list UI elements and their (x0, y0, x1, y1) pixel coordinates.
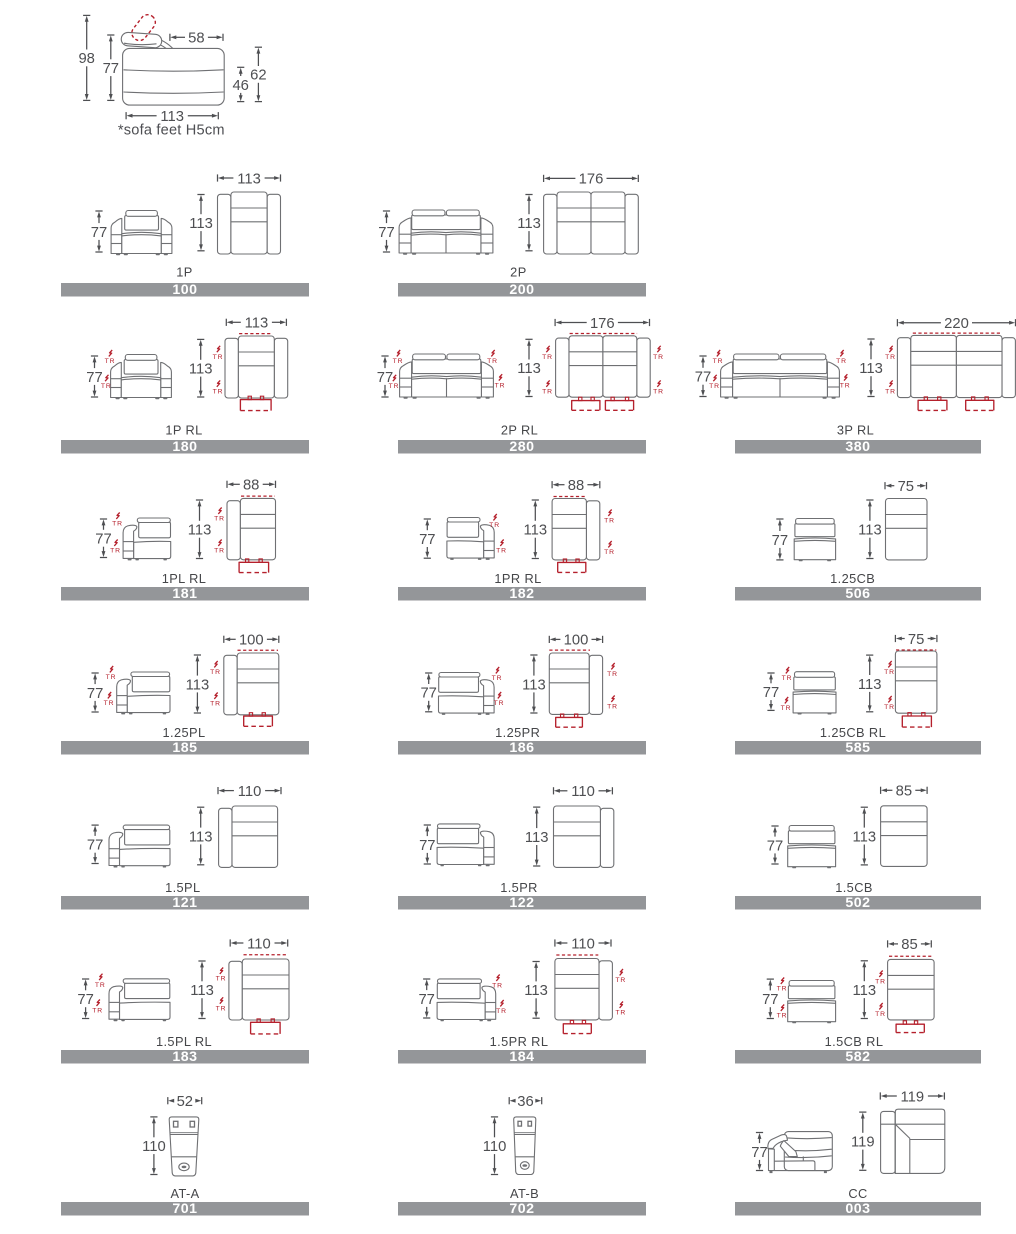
svg-text:121: 121 (172, 895, 197, 911)
svg-text:113: 113 (525, 830, 549, 846)
svg-text:280: 280 (509, 439, 534, 455)
svg-text:1.25PL: 1.25PL (163, 725, 206, 740)
svg-text:TR: TR (607, 671, 618, 678)
svg-text:85: 85 (901, 937, 917, 953)
svg-text:1.5PL RL: 1.5PL RL (156, 1034, 212, 1049)
svg-text:77: 77 (762, 992, 778, 1008)
svg-text:TR: TR (885, 354, 896, 361)
svg-text:113: 113 (853, 829, 877, 845)
svg-text:TR: TR (713, 358, 724, 365)
svg-text:TR: TR (92, 1008, 103, 1015)
svg-text:1.5CB: 1.5CB (835, 880, 873, 895)
svg-text:TR: TR (496, 1008, 507, 1015)
svg-text:77: 77 (751, 1145, 767, 1161)
svg-text:100: 100 (564, 633, 589, 649)
svg-text:77: 77 (772, 533, 788, 549)
svg-text:77: 77 (91, 225, 107, 241)
svg-text:TR: TR (495, 382, 506, 389)
svg-text:TR: TR (875, 1011, 886, 1018)
svg-text:113: 113 (853, 983, 877, 999)
svg-text:TR: TR (216, 976, 227, 983)
svg-text:77: 77 (87, 838, 103, 854)
svg-text:702: 702 (509, 1201, 534, 1217)
svg-text:110: 110 (247, 936, 271, 952)
svg-text:TR: TR (777, 1013, 788, 1020)
svg-text:2P RL: 2P RL (501, 423, 538, 438)
svg-text:TR: TR (214, 548, 225, 555)
svg-text:113: 113 (517, 216, 541, 232)
svg-text:77: 77 (420, 686, 436, 702)
svg-text:113: 113 (522, 677, 546, 693)
svg-text:TR: TR (210, 701, 221, 708)
svg-text:113: 113 (237, 171, 261, 187)
svg-text:182: 182 (509, 586, 534, 602)
svg-text:77: 77 (419, 532, 435, 548)
svg-text:003: 003 (845, 1201, 870, 1217)
svg-text:380: 380 (845, 439, 870, 455)
svg-text:1.5PR RL: 1.5PR RL (490, 1034, 549, 1049)
svg-text:98: 98 (78, 51, 94, 67)
svg-text:TR: TR (653, 354, 664, 361)
svg-text:TR: TR (884, 669, 895, 676)
svg-text:186: 186 (509, 740, 534, 756)
svg-text:701: 701 (172, 1201, 197, 1217)
svg-text:1.5CB RL: 1.5CB RL (825, 1034, 884, 1049)
svg-text:113: 113 (186, 677, 210, 693)
svg-text:110: 110 (571, 784, 595, 800)
svg-text:46: 46 (232, 78, 248, 94)
svg-text:1P: 1P (176, 265, 192, 280)
svg-text:CC: CC (848, 1186, 867, 1201)
svg-text:TR: TR (615, 977, 626, 984)
svg-text:TR: TR (884, 704, 895, 711)
svg-text:TR: TR (213, 354, 224, 361)
svg-text:184: 184 (509, 1049, 534, 1065)
svg-text:TR: TR (782, 675, 793, 682)
svg-text:183: 183 (172, 1049, 197, 1065)
svg-text:77: 77 (378, 225, 394, 241)
svg-text:220: 220 (944, 316, 969, 332)
svg-text:100: 100 (172, 282, 197, 298)
svg-text:100: 100 (239, 633, 264, 649)
svg-text:TR: TR (105, 358, 116, 365)
svg-text:62: 62 (250, 68, 266, 84)
svg-text:TR: TR (496, 548, 507, 555)
svg-text:110: 110 (483, 1139, 507, 1155)
svg-text:*sofa feet H5cm: *sofa feet H5cm (118, 123, 225, 139)
svg-text:TR: TR (492, 983, 503, 990)
svg-text:110: 110 (142, 1139, 166, 1155)
svg-text:77: 77 (95, 532, 111, 548)
svg-text:110: 110 (238, 784, 262, 800)
svg-text:TR: TR (110, 548, 121, 555)
svg-text:113: 113 (858, 677, 882, 693)
svg-text:180: 180 (172, 439, 197, 455)
svg-text:TR: TR (840, 382, 851, 389)
svg-text:77: 77 (103, 61, 119, 77)
svg-text:77: 77 (418, 992, 434, 1008)
svg-text:2P: 2P (510, 265, 526, 280)
svg-text:TR: TR (494, 700, 505, 707)
svg-text:113: 113 (188, 523, 212, 539)
svg-text:TR: TR (604, 518, 615, 525)
svg-text:185: 185 (172, 740, 197, 756)
svg-text:TR: TR (489, 522, 500, 529)
svg-text:TR: TR (875, 979, 886, 986)
svg-text:113: 113 (189, 829, 213, 845)
svg-text:88: 88 (243, 478, 259, 494)
svg-text:176: 176 (590, 316, 615, 332)
svg-text:TR: TR (112, 521, 123, 528)
svg-text:77: 77 (77, 992, 93, 1008)
svg-text:506: 506 (845, 586, 870, 602)
svg-text:77: 77 (377, 370, 393, 386)
svg-text:119: 119 (901, 1089, 925, 1105)
svg-text:77: 77 (86, 370, 102, 386)
svg-text:113: 113 (189, 362, 213, 378)
svg-text:TR: TR (487, 358, 498, 365)
svg-text:52: 52 (177, 1094, 193, 1110)
svg-text:TR: TR (393, 358, 404, 365)
svg-text:113: 113 (517, 361, 541, 377)
svg-text:TR: TR (104, 700, 115, 707)
svg-text:TR: TR (95, 982, 106, 989)
svg-text:TR: TR (885, 389, 896, 396)
svg-text:TR: TR (615, 1010, 626, 1017)
svg-text:77: 77 (695, 370, 711, 386)
svg-text:TR: TR (836, 358, 847, 365)
svg-text:502: 502 (845, 895, 870, 911)
svg-text:77: 77 (767, 838, 783, 854)
svg-text:113: 113 (524, 523, 548, 539)
svg-text:113: 113 (858, 523, 882, 539)
svg-text:1.5PL: 1.5PL (165, 880, 200, 895)
svg-text:3P RL: 3P RL (837, 423, 874, 438)
svg-text:1.25CB: 1.25CB (830, 571, 875, 586)
svg-text:113: 113 (524, 983, 548, 999)
svg-text:TR: TR (607, 704, 618, 711)
svg-text:TR: TR (604, 549, 615, 556)
svg-text:TR: TR (106, 674, 117, 681)
svg-text:TR: TR (216, 1006, 227, 1013)
svg-text:582: 582 (845, 1049, 870, 1065)
svg-text:113: 113 (189, 216, 213, 232)
svg-text:77: 77 (419, 838, 435, 854)
svg-text:113: 113 (859, 361, 883, 377)
svg-text:TR: TR (213, 389, 224, 396)
svg-text:77: 77 (87, 686, 103, 702)
svg-text:85: 85 (896, 784, 912, 800)
svg-text:1.25PR: 1.25PR (495, 725, 540, 740)
svg-text:36: 36 (517, 1094, 533, 1110)
svg-text:1.25CB RL: 1.25CB RL (820, 725, 886, 740)
svg-text:TR: TR (214, 516, 225, 523)
svg-text:58: 58 (188, 31, 204, 47)
svg-text:176: 176 (579, 172, 604, 188)
svg-text:AT-A: AT-A (170, 1186, 199, 1201)
svg-text:1PL RL: 1PL RL (162, 571, 207, 586)
svg-text:119: 119 (851, 1135, 875, 1151)
svg-text:1.5PR: 1.5PR (500, 880, 538, 895)
svg-text:TR: TR (210, 669, 221, 676)
svg-text:1PR RL: 1PR RL (494, 571, 541, 586)
svg-text:113: 113 (245, 316, 269, 332)
svg-text:TR: TR (653, 389, 664, 396)
svg-text:AT-B: AT-B (510, 1186, 539, 1201)
svg-text:181: 181 (172, 586, 197, 602)
svg-text:75: 75 (898, 479, 914, 495)
svg-text:88: 88 (568, 478, 584, 494)
svg-text:122: 122 (509, 895, 534, 911)
svg-text:TR: TR (542, 389, 553, 396)
svg-text:1P RL: 1P RL (165, 423, 202, 438)
svg-text:75: 75 (908, 632, 924, 648)
svg-text:113: 113 (190, 983, 214, 999)
svg-text:TR: TR (781, 705, 792, 712)
svg-text:200: 200 (509, 282, 534, 298)
svg-text:110: 110 (571, 936, 595, 952)
svg-text:TR: TR (492, 675, 503, 682)
svg-text:TR: TR (542, 354, 553, 361)
svg-text:77: 77 (763, 685, 779, 701)
svg-text:585: 585 (845, 740, 870, 756)
